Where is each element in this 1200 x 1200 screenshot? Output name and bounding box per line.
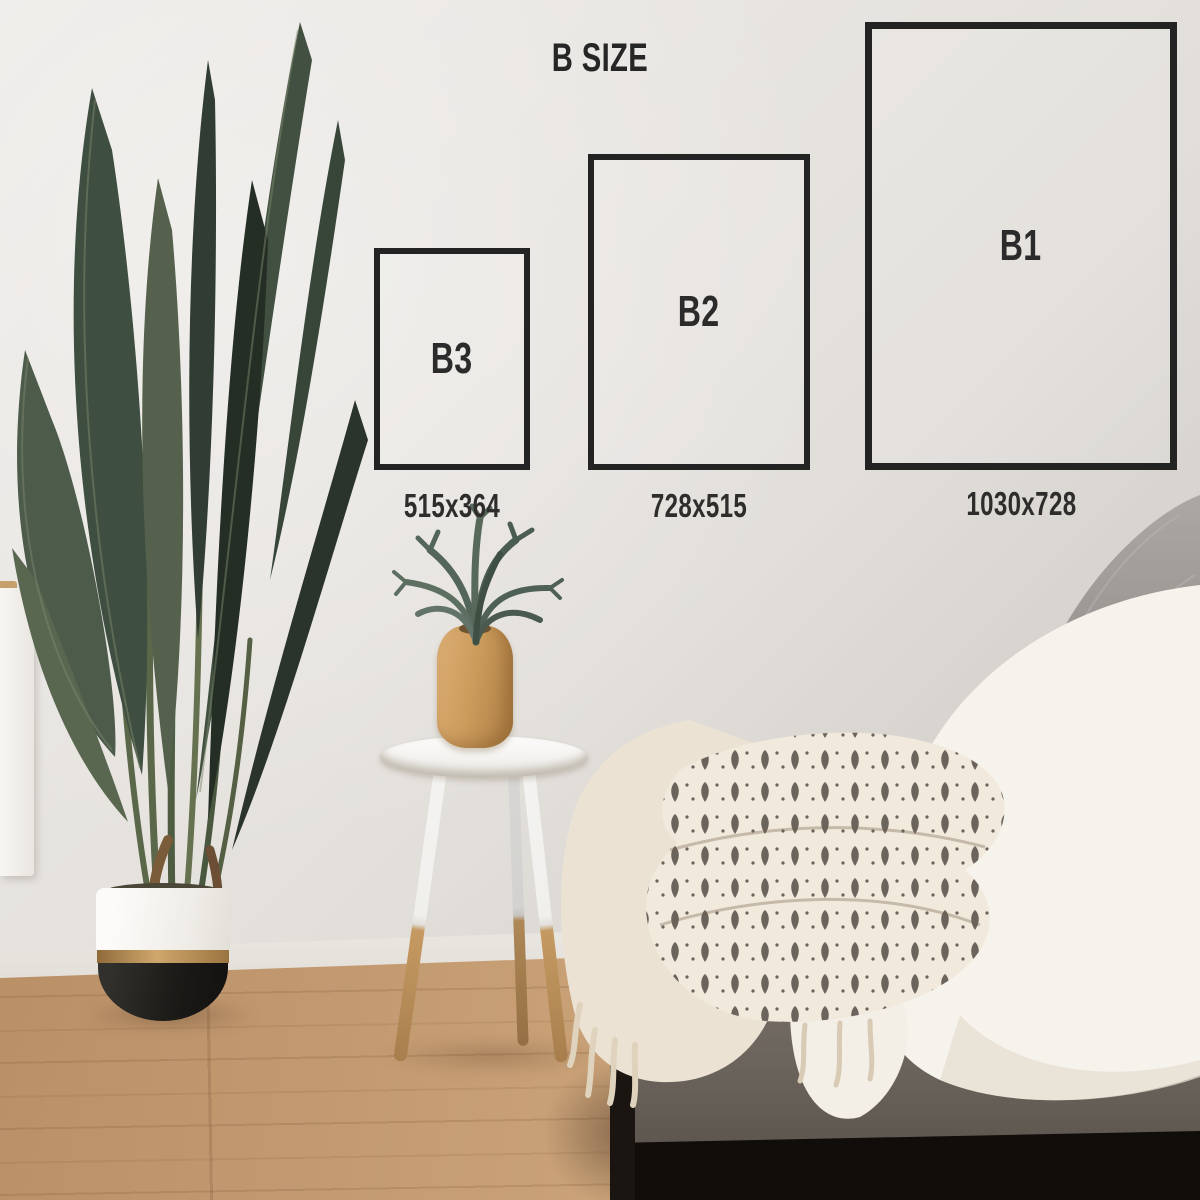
- size-dimensions-b3: 515x364: [374, 488, 530, 524]
- size-dimensions-b1-text: 1030x728: [966, 485, 1076, 523]
- size-dimensions-b2: 728x515: [588, 488, 810, 524]
- size-label-b2: B2: [678, 287, 720, 337]
- chart-title: B SIZE: [480, 36, 720, 81]
- size-label-b1: B1: [1000, 221, 1042, 271]
- size-dimensions-b1: 1030x728: [865, 486, 1177, 522]
- size-rect-b3: B3: [374, 248, 530, 470]
- size-dimensions-b3-text: 515x364: [404, 487, 500, 525]
- pot-white-band: [96, 888, 230, 950]
- room-photo-with-size-chart: B SIZE B3 B2 B1 515x364 728x515 1030x728: [0, 0, 1200, 1200]
- plant-leaves: [12, 22, 368, 850]
- size-label-b3: B3: [431, 334, 473, 384]
- chart-title-text: B SIZE: [552, 36, 648, 81]
- couch: [540, 455, 1200, 1200]
- size-rect-b2: B2: [588, 154, 810, 470]
- pot-black-base: [98, 963, 228, 1021]
- pot-gold-band: [97, 950, 229, 963]
- size-dimensions-b2-text: 728x515: [651, 487, 747, 525]
- planter-pot: [96, 888, 230, 1018]
- size-rect-b1: B1: [865, 22, 1177, 470]
